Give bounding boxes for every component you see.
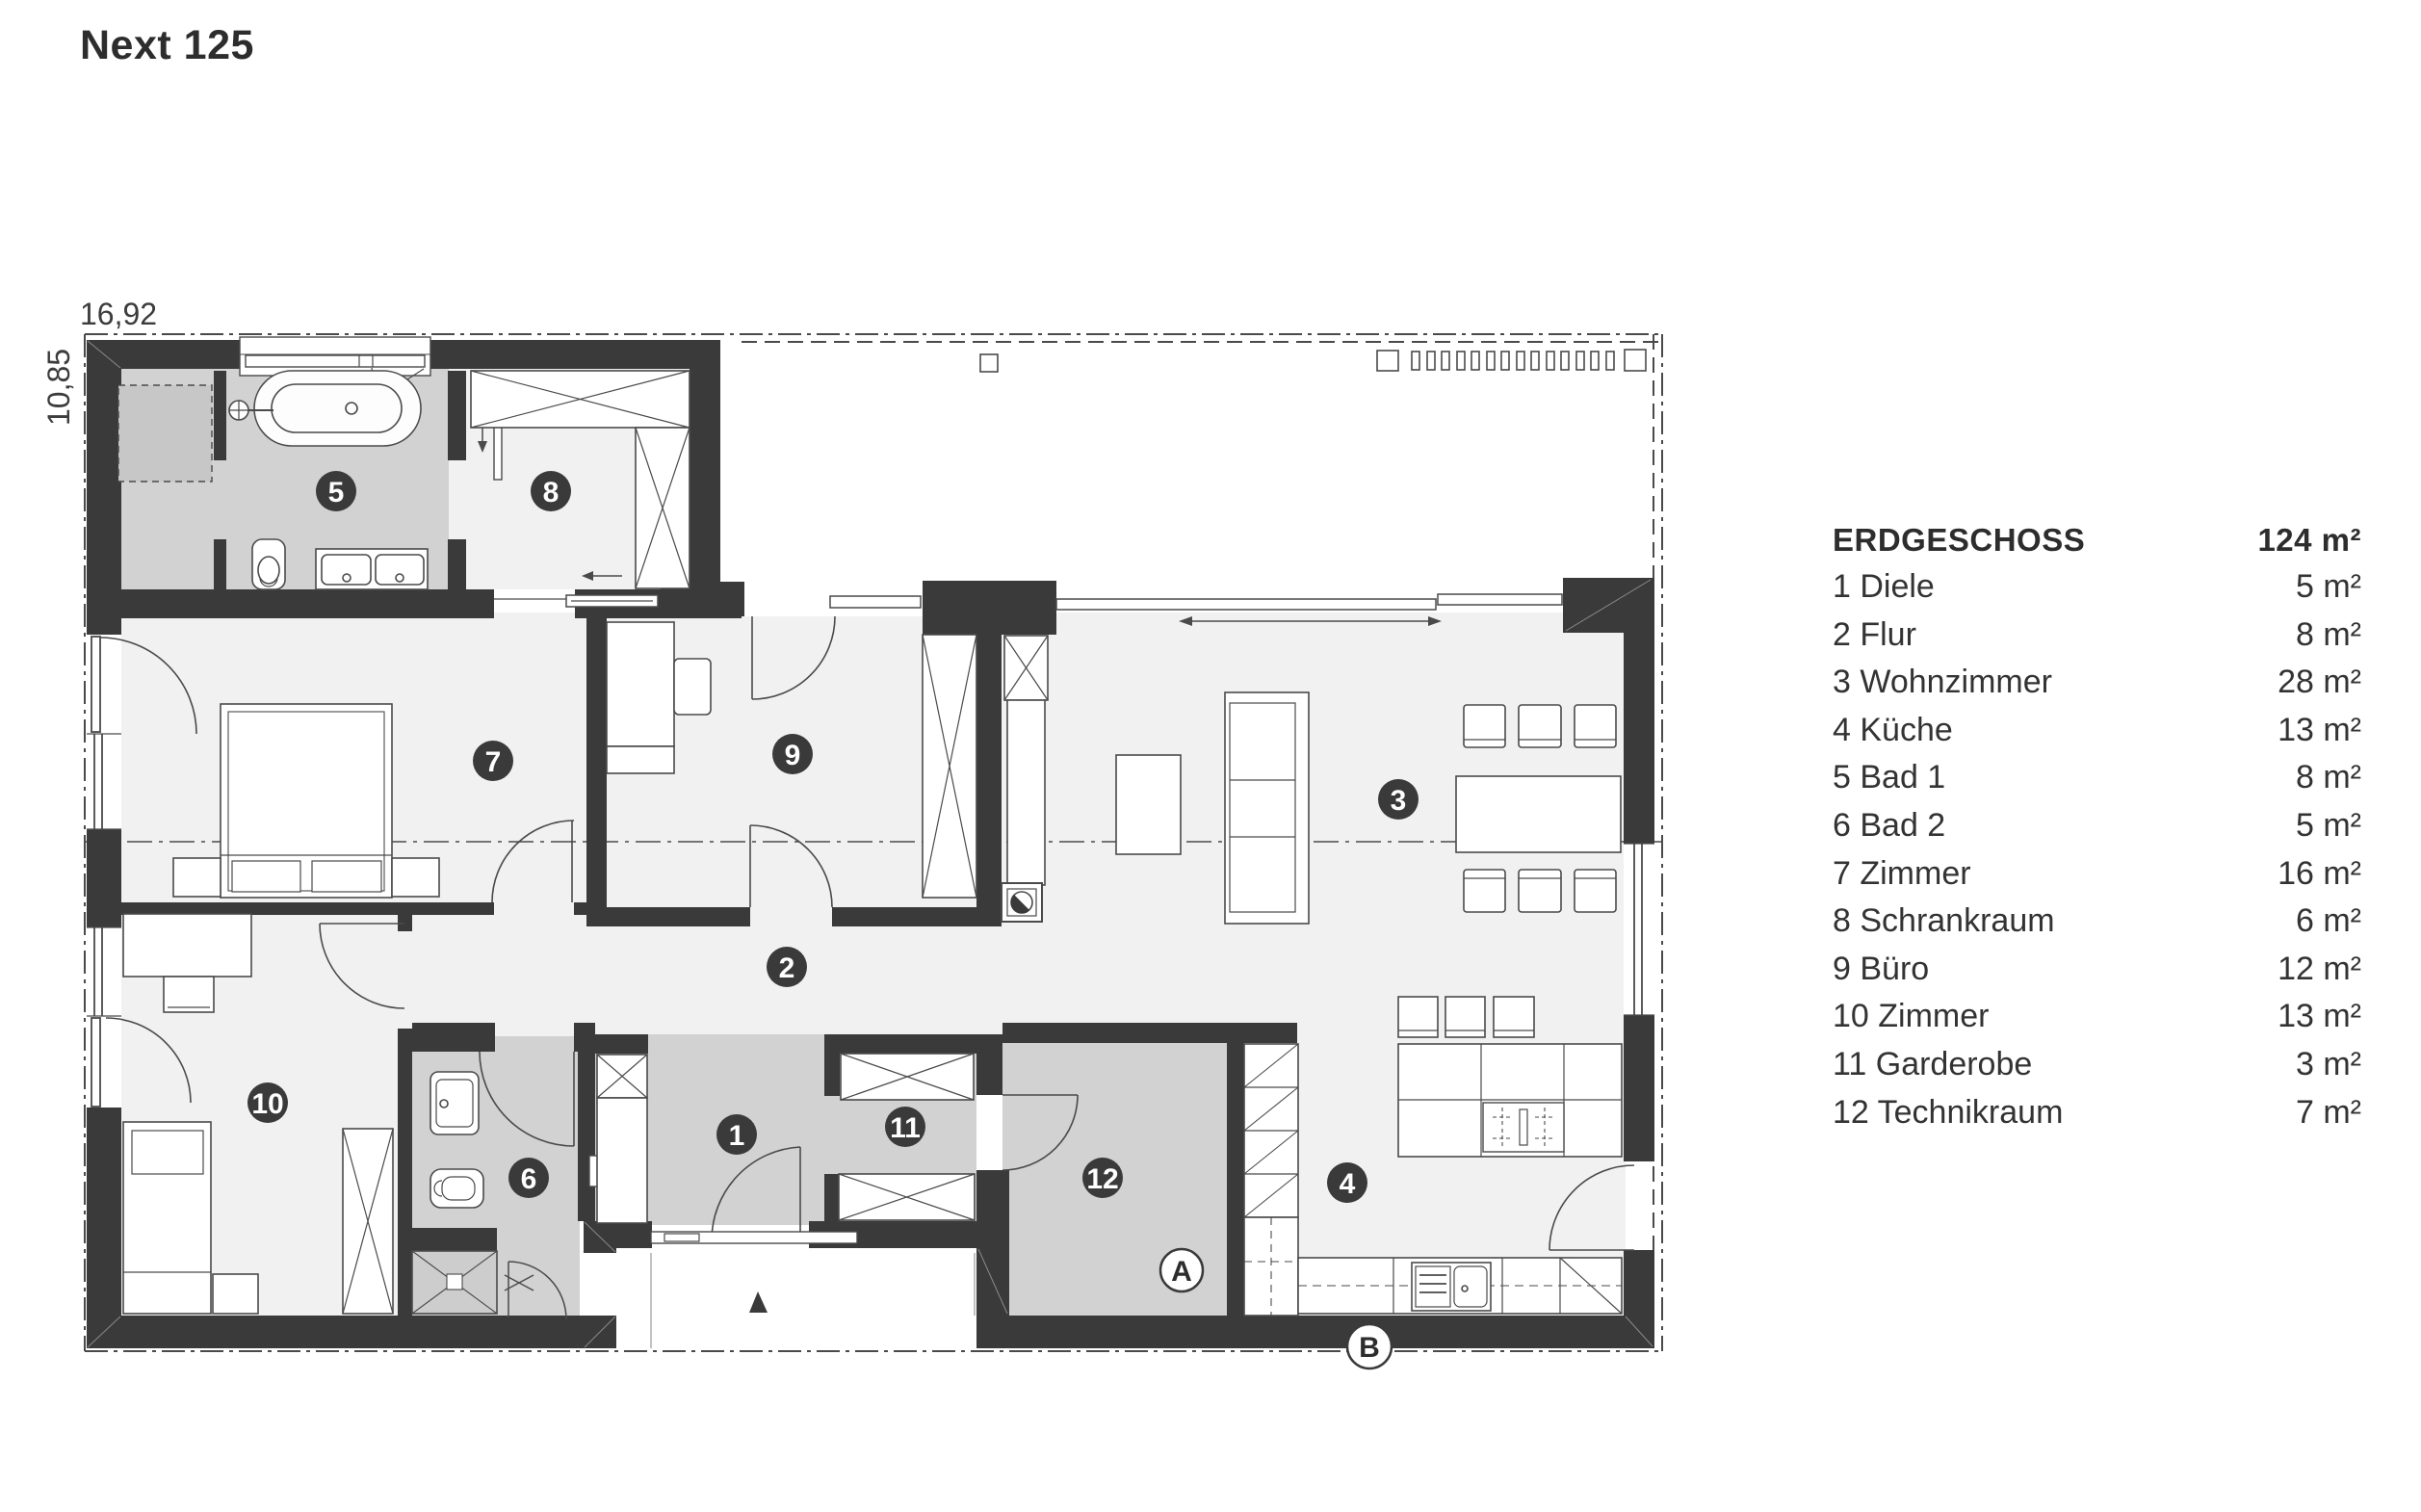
svg-text:5: 5 — [328, 477, 345, 508]
svg-text:B: B — [1359, 1332, 1380, 1364]
svg-text:11: 11 — [890, 1112, 921, 1144]
svg-text:1: 1 — [729, 1120, 745, 1152]
svg-text:5 Bad 1: 5 Bad 1 — [1833, 759, 1945, 795]
svg-text:6 Bad 2: 6 Bad 2 — [1833, 807, 1945, 844]
svg-text:7: 7 — [485, 746, 502, 778]
svg-text:13 m²: 13 m² — [2278, 998, 2361, 1034]
svg-text:12: 12 — [1086, 1163, 1118, 1195]
svg-text:5 m²: 5 m² — [2296, 568, 2361, 605]
svg-text:6 m²: 6 m² — [2296, 902, 2361, 939]
svg-text:ERDGESCHOSS: ERDGESCHOSS — [1833, 522, 2085, 558]
svg-text:7 Zimmer: 7 Zimmer — [1833, 855, 1971, 892]
svg-text:11 Garderobe: 11 Garderobe — [1833, 1046, 2032, 1082]
svg-text:3 m²: 3 m² — [2296, 1046, 2361, 1082]
svg-text:2 Flur: 2 Flur — [1833, 616, 1916, 653]
svg-text:9: 9 — [785, 740, 801, 771]
svg-text:3: 3 — [1391, 785, 1407, 817]
svg-text:7 m²: 7 m² — [2296, 1094, 2361, 1131]
svg-text:5 m²: 5 m² — [2296, 807, 2361, 844]
svg-text:16 m²: 16 m² — [2278, 855, 2361, 892]
svg-text:3 Wohnzimmer: 3 Wohnzimmer — [1833, 664, 2052, 700]
svg-text:13 m²: 13 m² — [2278, 712, 2361, 748]
svg-text:8: 8 — [543, 477, 560, 508]
svg-text:28 m²: 28 m² — [2278, 664, 2361, 700]
svg-text:16,92: 16,92 — [80, 297, 157, 331]
svg-text:8 Schrankraum: 8 Schrankraum — [1833, 902, 2055, 939]
svg-text:10: 10 — [251, 1088, 283, 1120]
svg-text:9 Büro: 9 Büro — [1833, 951, 1929, 987]
svg-text:1 Diele: 1 Diele — [1833, 568, 1935, 605]
svg-text:8 m²: 8 m² — [2296, 616, 2361, 653]
svg-text:10 Zimmer: 10 Zimmer — [1833, 998, 1989, 1034]
svg-text:12 Technikraum: 12 Technikraum — [1833, 1094, 2063, 1131]
svg-text:Next 125: Next 125 — [80, 22, 254, 68]
svg-text:10,85: 10,85 — [41, 349, 76, 426]
svg-text:124 m²: 124 m² — [2257, 522, 2361, 558]
svg-text:2: 2 — [779, 952, 795, 984]
svg-text:4 Küche: 4 Küche — [1833, 712, 1953, 748]
svg-text:A: A — [1171, 1256, 1192, 1288]
svg-text:8 m²: 8 m² — [2296, 759, 2361, 795]
svg-text:12 m²: 12 m² — [2278, 951, 2361, 987]
svg-text:6: 6 — [521, 1163, 537, 1195]
svg-text:4: 4 — [1340, 1168, 1356, 1200]
